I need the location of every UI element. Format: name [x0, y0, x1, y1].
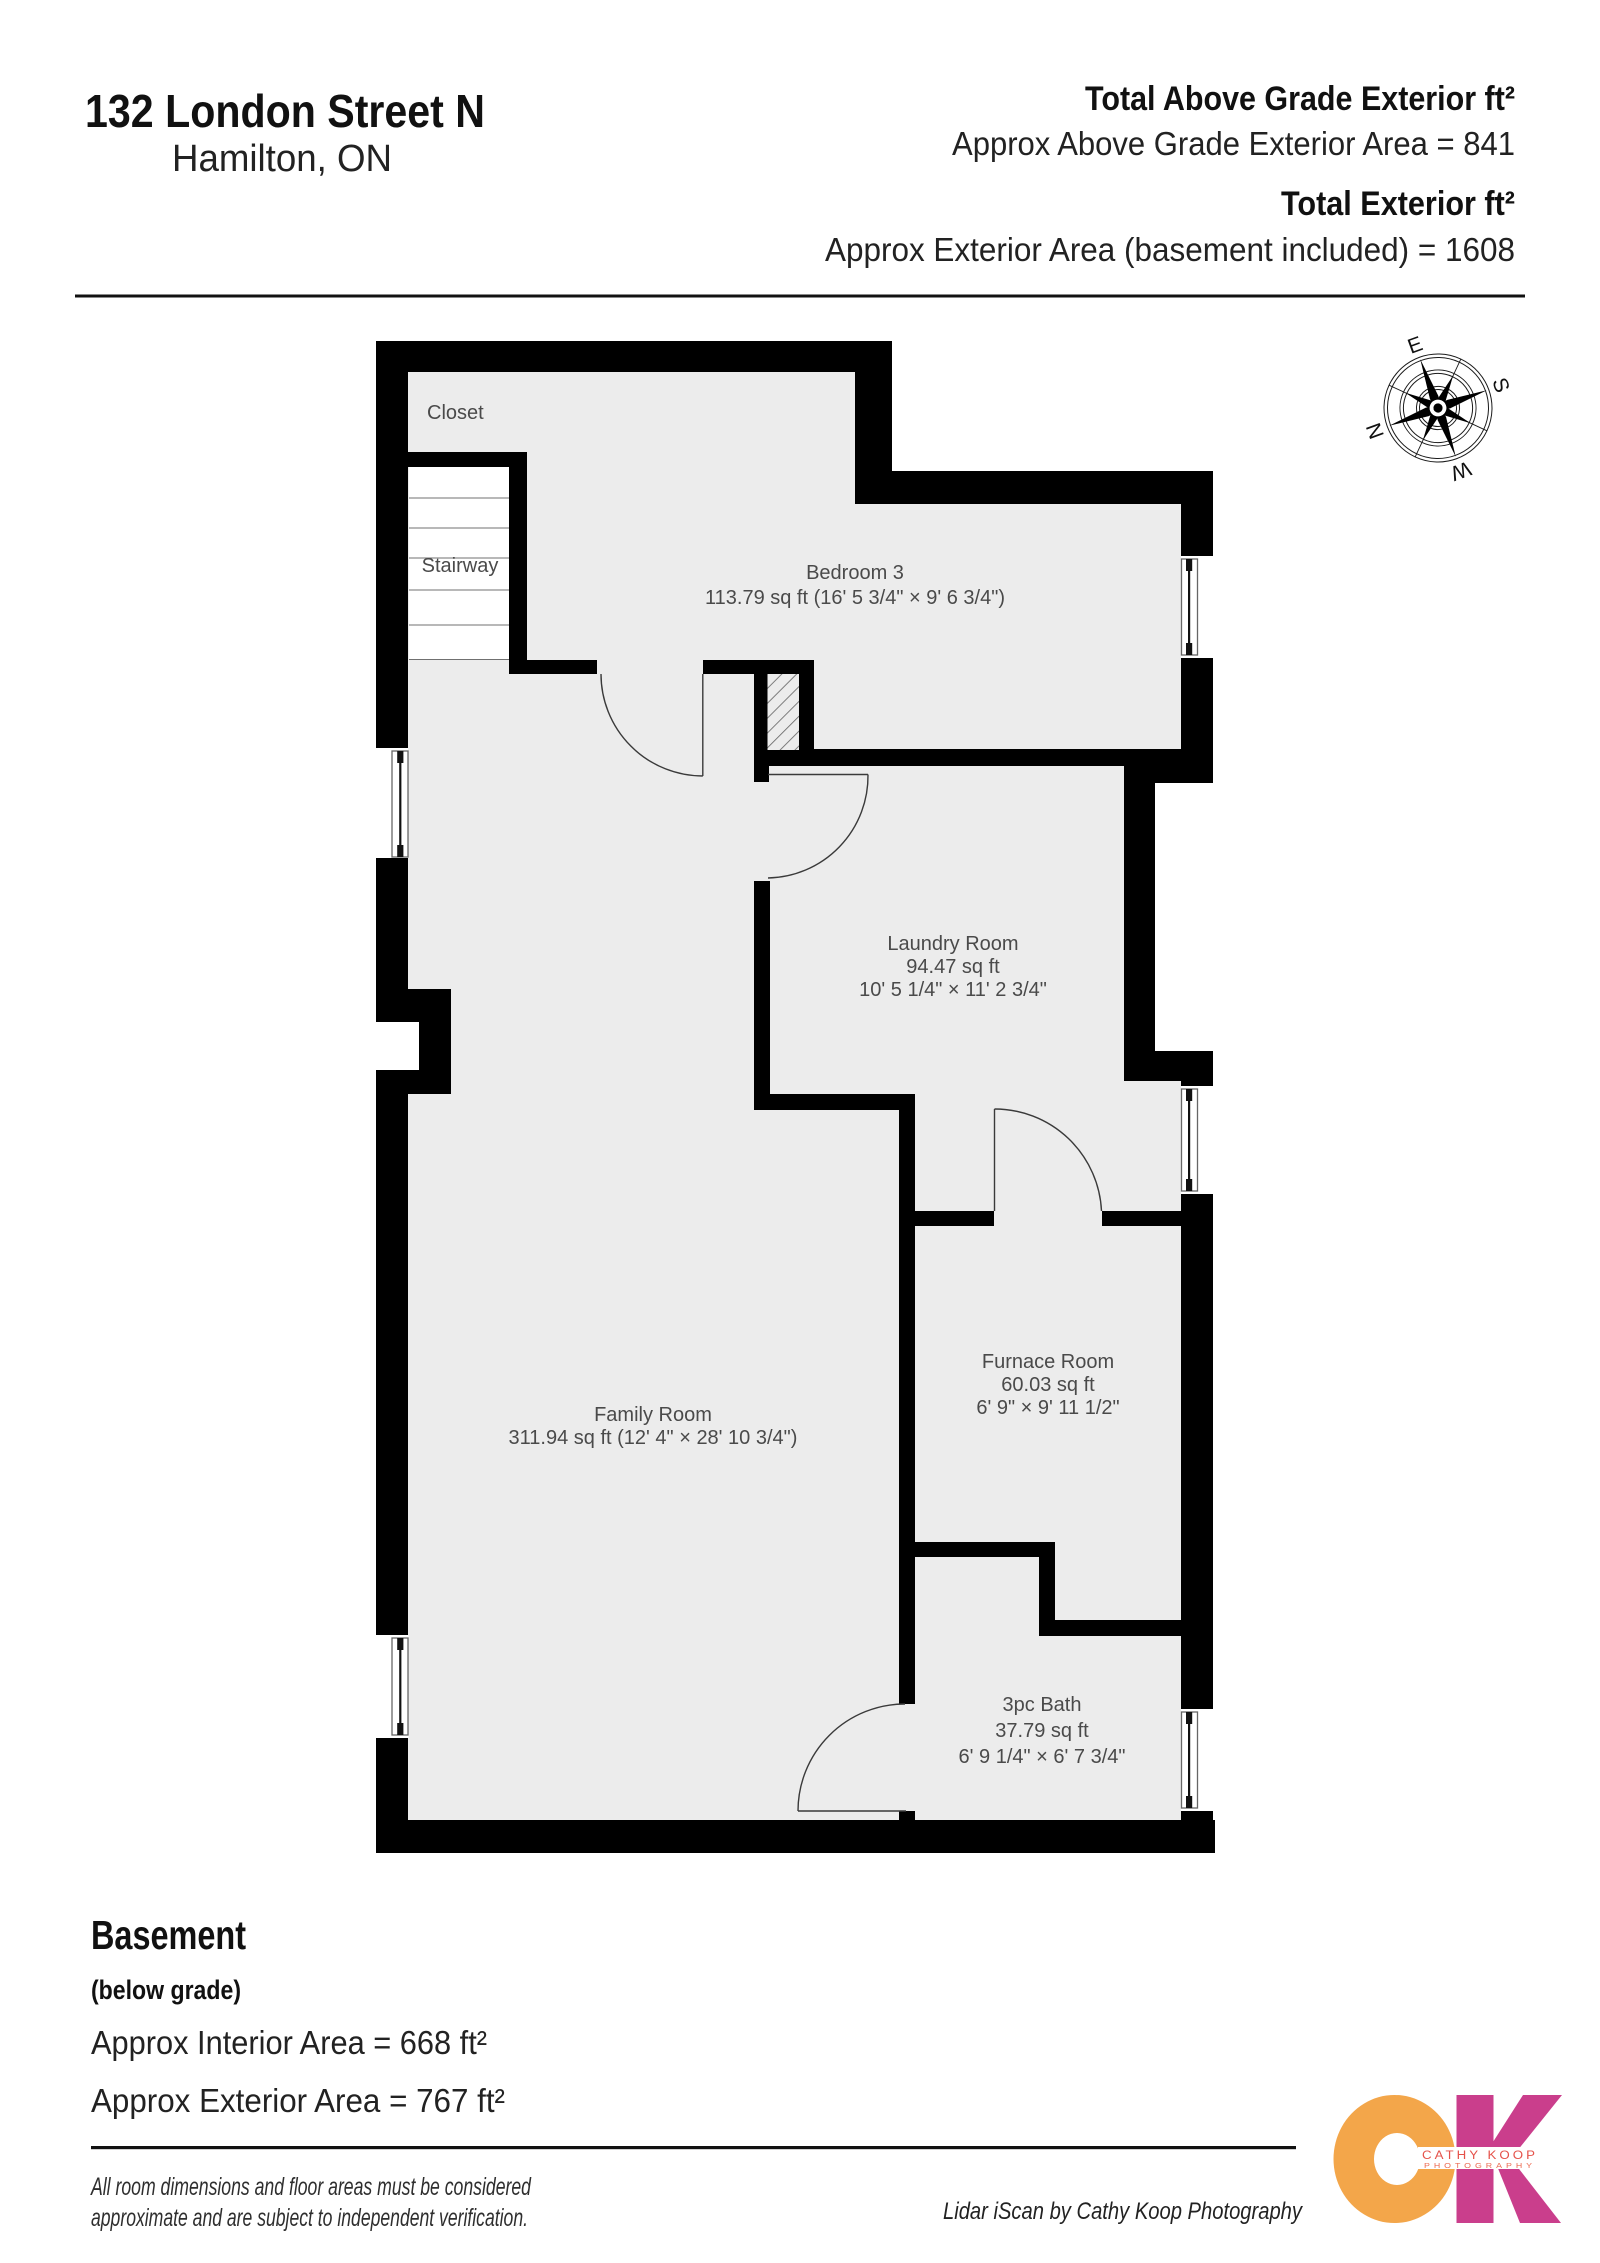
svg-text:Approx Interior Area = 668 ft²: Approx Interior Area = 668 ft²	[91, 2024, 487, 2061]
svg-text:60.03 sq ft: 60.03 sq ft	[1001, 1374, 1095, 1396]
svg-text:Basement: Basement	[91, 1912, 246, 1958]
svg-text:Approx Exterior Area = 767 ft²: Approx Exterior Area = 767 ft²	[91, 2082, 505, 2119]
svg-text:Stairway: Stairway	[422, 555, 499, 577]
svg-text:Lidar iScan by Cathy Koop Phot: Lidar iScan by Cathy Koop Photography	[943, 2198, 1304, 2225]
svg-text:PHOTOGRAPHY: PHOTOGRAPHY	[1424, 2161, 1536, 2170]
svg-text:311.94 sq ft (12' 4" × 28' 10: 311.94 sq ft (12' 4" × 28' 10 3/4")	[509, 1427, 798, 1449]
svg-text:37.79 sq ft: 37.79 sq ft	[995, 1720, 1089, 1742]
svg-text:Family Room: Family Room	[594, 1404, 712, 1426]
svg-text:Total Exterior ft²: Total Exterior ft²	[1281, 185, 1515, 223]
svg-text:94.47 sq ft: 94.47 sq ft	[906, 956, 1000, 978]
svg-text:6' 9" × 9' 11 1/2": 6' 9" × 9' 11 1/2"	[976, 1397, 1119, 1419]
svg-text:(below grade): (below grade)	[91, 1975, 241, 2005]
svg-text:Closet: Closet	[427, 402, 484, 424]
svg-text:Total Above Grade Exterior ft²: Total Above Grade Exterior ft²	[1085, 80, 1515, 118]
svg-text:Bedroom 3: Bedroom 3	[806, 562, 904, 584]
svg-text:approximate and are subject to: approximate and are subject to independe…	[91, 2204, 528, 2232]
svg-text:Furnace Room: Furnace Room	[982, 1351, 1114, 1373]
svg-text:6' 9 1/4" × 6' 7 3/4": 6' 9 1/4" × 6' 7 3/4"	[959, 1746, 1126, 1768]
svg-text:Approx Above Grade Exterior Ar: Approx Above Grade Exterior Area = 841	[952, 125, 1515, 162]
svg-text:113.79 sq ft (16' 5 3/4" × 9': 113.79 sq ft (16' 5 3/4" × 9' 6 3/4")	[705, 587, 1005, 609]
svg-text:All room dimensions and floor: All room dimensions and floor areas must…	[90, 2173, 532, 2201]
svg-text:Laundry Room: Laundry Room	[887, 933, 1018, 955]
svg-text:3pc Bath: 3pc Bath	[1003, 1694, 1082, 1716]
svg-text:132 London Street N: 132 London Street N	[85, 85, 485, 137]
svg-text:Approx Exterior Area (basement: Approx Exterior Area (basement included)…	[825, 231, 1515, 268]
svg-text:10' 5 1/4" × 11' 2 3/4": 10' 5 1/4" × 11' 2 3/4"	[859, 979, 1047, 1001]
svg-text:Hamilton, ON: Hamilton, ON	[172, 138, 392, 180]
